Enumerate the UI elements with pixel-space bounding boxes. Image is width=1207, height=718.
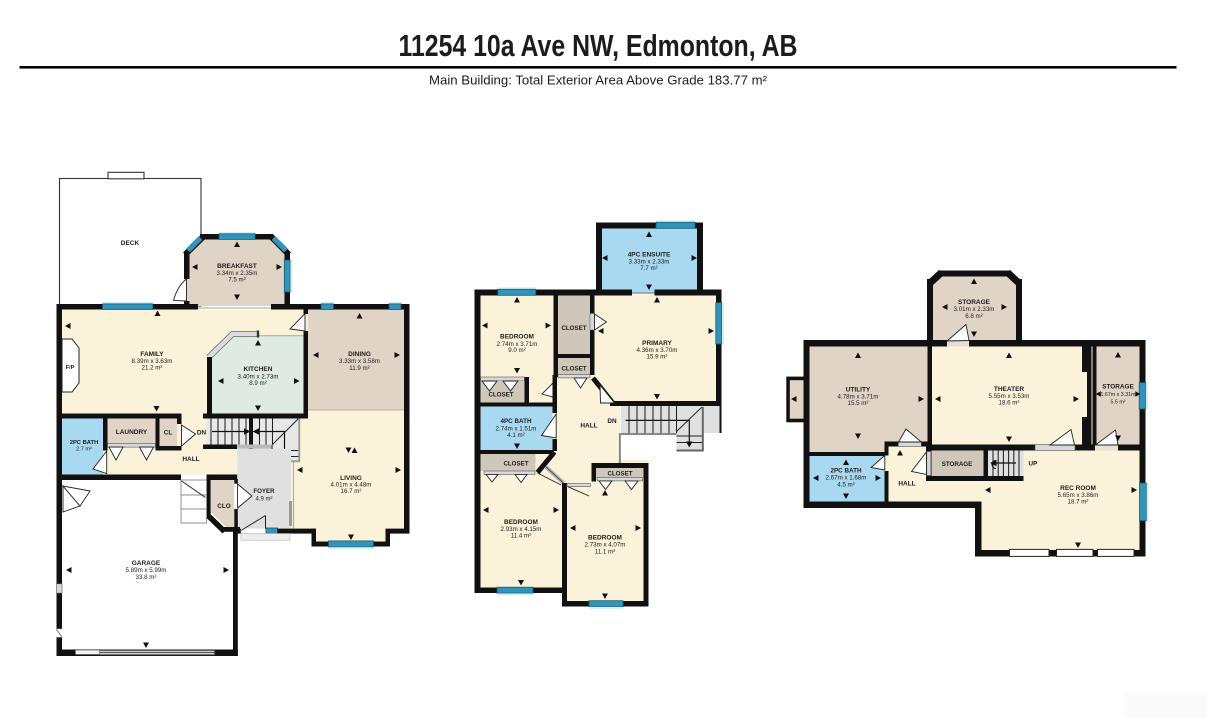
svg-text:15.5 m²: 15.5 m² [848, 400, 869, 407]
svg-text:STORAGE: STORAGE [942, 461, 972, 468]
svg-text:HALL: HALL [182, 456, 199, 463]
svg-text:STORAGE: STORAGE [1102, 384, 1134, 391]
svg-text:6.8 m²: 6.8 m² [965, 313, 983, 320]
svg-text:UTILITY: UTILITY [846, 387, 871, 394]
svg-text:HALL: HALL [898, 481, 915, 488]
svg-text:7.7 m²: 7.7 m² [640, 265, 658, 272]
svg-text:11.4 m²: 11.4 m² [511, 533, 532, 540]
svg-text:DECK: DECK [121, 240, 140, 247]
svg-text:BEDROOM: BEDROOM [588, 535, 622, 542]
svg-text:Main Building: Total Exterior: Main Building: Total Exterior Area Above… [429, 74, 767, 88]
svg-text:FOYER: FOYER [253, 488, 275, 495]
svg-text:PRIMARY: PRIMARY [642, 340, 672, 347]
svg-text:8.9 m²: 8.9 m² [249, 380, 267, 387]
svg-text:HALL: HALL [580, 423, 597, 430]
svg-text:18.6 m²: 18.6 m² [999, 400, 1020, 407]
svg-text:11.1 m²: 11.1 m² [595, 548, 616, 555]
svg-text:1.67m x 3.31m: 1.67m x 3.31m [1100, 392, 1136, 398]
svg-text:2PC BATH: 2PC BATH [830, 468, 861, 475]
svg-text:2.7 m²: 2.7 m² [76, 447, 92, 453]
svg-text:CLOSET: CLOSET [561, 325, 586, 332]
svg-text:11.9 m²: 11.9 m² [349, 365, 370, 372]
svg-text:F/P: F/P [66, 365, 75, 371]
svg-text:4.1 m²: 4.1 m² [507, 432, 525, 439]
svg-text:15.9 m²: 15.9 m² [647, 354, 668, 361]
svg-text:4PC BATH: 4PC BATH [500, 418, 531, 425]
svg-text:GARAGE: GARAGE [132, 560, 161, 567]
svg-text:4.9 m²: 4.9 m² [255, 497, 272, 503]
svg-text:2PC BATH: 2PC BATH [70, 440, 99, 446]
svg-text:9.0 m²: 9.0 m² [508, 347, 526, 354]
svg-text:LAUNDRY: LAUNDRY [116, 429, 148, 436]
svg-text:CLO: CLO [217, 503, 231, 510]
svg-text:7.5 m²: 7.5 m² [228, 277, 246, 284]
svg-text:CL: CL [164, 430, 173, 437]
svg-text:4PC ENSUITE: 4PC ENSUITE [628, 251, 671, 258]
svg-text:BEDROOM: BEDROOM [504, 519, 538, 526]
svg-text:CLOSET: CLOSET [607, 471, 632, 478]
svg-text:BEDROOM: BEDROOM [500, 334, 534, 341]
svg-text:THEATER: THEATER [994, 386, 1025, 393]
svg-text:DN: DN [607, 418, 617, 425]
svg-text:16.7 m²: 16.7 m² [341, 488, 362, 495]
svg-text:DN: DN [197, 430, 207, 437]
svg-text:18.7 m²: 18.7 m² [1068, 499, 1089, 506]
svg-text:CLOSET: CLOSET [503, 461, 528, 468]
svg-text:11254 10a Ave NW, Edmonton, AB: 11254 10a Ave NW, Edmonton, AB [399, 28, 798, 63]
svg-text:CLOSET: CLOSET [561, 366, 586, 373]
svg-text:5.5 m²: 5.5 m² [1110, 400, 1125, 406]
svg-text:REC ROOM: REC ROOM [1060, 485, 1096, 492]
svg-text:CLOSET: CLOSET [488, 392, 513, 399]
svg-text:KITCHEN: KITCHEN [244, 366, 273, 373]
svg-text:21.2 m²: 21.2 m² [142, 364, 163, 371]
svg-text:33.8 m²: 33.8 m² [136, 574, 157, 581]
svg-text:UP: UP [1029, 461, 1039, 468]
svg-text:STORAGE: STORAGE [958, 299, 991, 306]
svg-text:DINING: DINING [348, 351, 371, 358]
svg-text:4.5 m²: 4.5 m² [837, 481, 855, 488]
